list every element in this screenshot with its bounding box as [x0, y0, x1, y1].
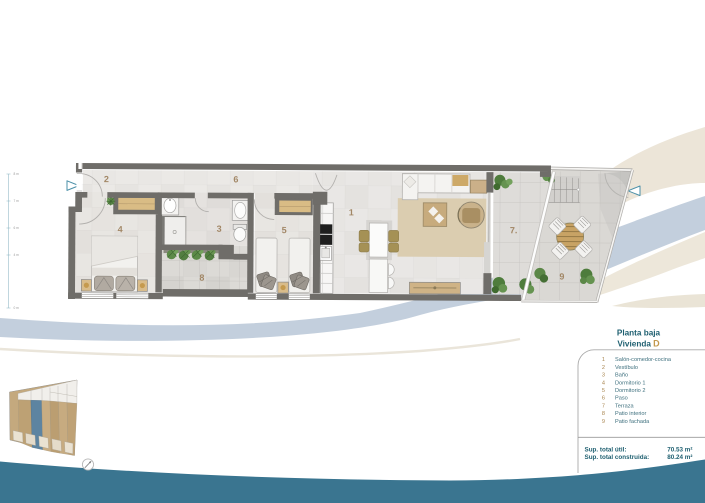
- svg-text:80.24 m²: 80.24 m²: [667, 454, 692, 461]
- svg-text:Dormitorio 2: Dormitorio 2: [615, 388, 645, 394]
- svg-text:Terraza: Terraza: [615, 403, 635, 409]
- svg-text:6 m: 6 m: [14, 226, 20, 230]
- svg-text:Vivienda D: Vivienda D: [617, 338, 660, 348]
- svg-text:7.: 7.: [510, 225, 518, 235]
- svg-text:7 m: 7 m: [14, 199, 20, 203]
- svg-text:9: 9: [602, 419, 605, 425]
- svg-text:4 m: 4 m: [14, 253, 20, 257]
- svg-text:6: 6: [233, 174, 238, 184]
- svg-text:Vestíbulo: Vestíbulo: [615, 365, 638, 371]
- svg-text:Sup. total útil:: Sup. total útil:: [585, 446, 627, 453]
- svg-text:8: 8: [602, 411, 605, 417]
- svg-text:2: 2: [104, 174, 109, 184]
- svg-text:7: 7: [602, 403, 605, 409]
- svg-text:70.53 m²: 70.53 m²: [667, 446, 692, 453]
- svg-text:4: 4: [602, 380, 605, 386]
- svg-text:5: 5: [282, 225, 287, 235]
- svg-text:6: 6: [602, 396, 605, 402]
- svg-text:3: 3: [602, 373, 605, 379]
- svg-text:Planta baja: Planta baja: [617, 328, 661, 337]
- svg-text:8: 8: [199, 273, 204, 283]
- svg-text:Patio fachada: Patio fachada: [615, 419, 650, 425]
- svg-text:1: 1: [349, 207, 354, 217]
- svg-text:3: 3: [217, 224, 222, 234]
- svg-text:1: 1: [602, 357, 605, 363]
- svg-text:Baño: Baño: [615, 373, 628, 379]
- svg-text:Paso: Paso: [615, 396, 628, 402]
- svg-text:Dormitorio 1: Dormitorio 1: [615, 380, 645, 386]
- svg-text:4: 4: [118, 224, 123, 234]
- svg-text:5: 5: [602, 388, 605, 394]
- svg-text:0 m: 0 m: [14, 306, 20, 310]
- svg-text:Salón-comedor-cocina: Salón-comedor-cocina: [615, 357, 672, 363]
- svg-text:Sup. total construida:: Sup. total construida:: [585, 454, 650, 461]
- svg-text:2: 2: [602, 365, 605, 371]
- svg-text:8 m: 8 m: [14, 172, 20, 176]
- svg-text:9: 9: [559, 272, 564, 282]
- svg-text:Patio interior: Patio interior: [615, 411, 647, 417]
